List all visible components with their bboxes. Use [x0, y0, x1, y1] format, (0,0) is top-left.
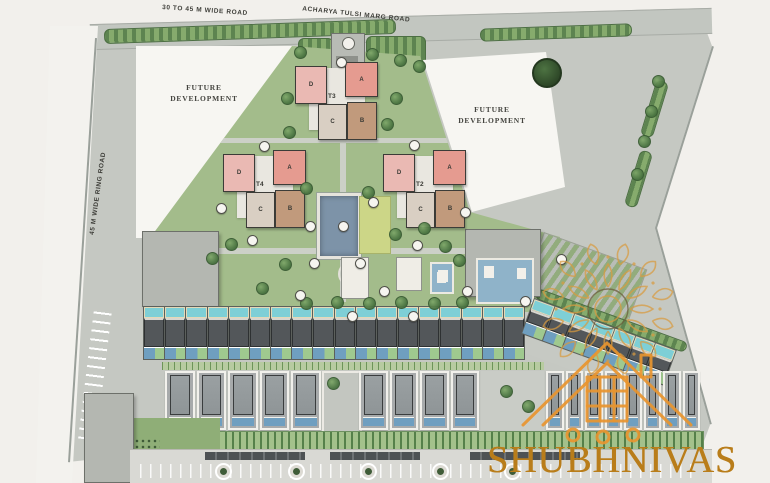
hedge-strip [162, 362, 544, 370]
tree-icon [395, 296, 408, 309]
amenity-marker [347, 311, 358, 322]
tree-icon [645, 105, 658, 118]
tower-cluster-t4: D A C B T4 [221, 144, 307, 230]
unit-roof [229, 318, 249, 347]
townhouse-unit [419, 307, 439, 359]
unit-roof [440, 318, 460, 347]
tree-icon [390, 92, 403, 105]
tree-icon [225, 238, 238, 251]
unit-roof [398, 318, 418, 347]
tower-label: T3 [328, 93, 336, 100]
villa-row-middle [359, 371, 479, 430]
amenity-marker [408, 311, 419, 322]
townhouse-unit [165, 307, 185, 359]
unit-yard [208, 347, 228, 359]
unit-yard [165, 347, 185, 359]
villa-unit [451, 371, 480, 430]
tower-block: D [295, 66, 327, 104]
tree-planter [288, 463, 305, 480]
plunge-pool [165, 307, 185, 318]
tree-icon [300, 182, 313, 195]
unit-roof [462, 318, 482, 347]
amenity-marker [309, 258, 320, 269]
tree-planter [360, 463, 377, 480]
townhouse-unit [462, 307, 482, 359]
tree-icon [256, 282, 269, 295]
plunge-pool [144, 307, 164, 318]
amenity-marker [462, 286, 473, 297]
tree-icon [418, 222, 431, 235]
tree-icon [366, 48, 379, 61]
future-development-label: FUTURE DEVELOPMENT [442, 104, 542, 127]
townhouse-unit [377, 307, 397, 359]
tree-icon [281, 92, 294, 105]
site-plan: 30 TO 45 M WIDE ROAD ACHARYA TULSI MARG … [0, 0, 770, 483]
round-planter [532, 58, 562, 88]
unit-yard [462, 347, 482, 359]
villa-unit [260, 371, 290, 430]
plunge-pool [440, 307, 460, 318]
amenity-marker [216, 203, 227, 214]
tower-block: D [383, 154, 415, 192]
tower-block: A [433, 150, 466, 185]
plunge-pool [229, 307, 249, 318]
townhouse-unit [186, 307, 206, 359]
amenity-marker [379, 286, 390, 297]
amenity-marker [295, 290, 306, 301]
tower-label: T4 [256, 181, 264, 188]
tower-block: B [347, 102, 377, 140]
unit-yard [144, 347, 164, 359]
plunge-pool [250, 307, 270, 318]
amenity-marker [460, 207, 471, 218]
amenity-marker [259, 141, 270, 152]
tree-icon [631, 168, 644, 181]
parked-cars [205, 452, 305, 460]
townhouse-unit [356, 307, 376, 359]
townhouse-row-1 [143, 306, 525, 360]
amenity-marker [409, 140, 420, 151]
brand-watermark-logo [495, 243, 755, 455]
unit-yard [186, 347, 206, 359]
unit-yard [229, 347, 249, 359]
tree-icon [283, 126, 296, 139]
tree-icon [439, 240, 452, 253]
utility-building [84, 393, 134, 483]
amenity-marker [368, 197, 379, 208]
tree-icon [279, 258, 292, 271]
tower-cluster-t2: D A C B T2 [381, 144, 467, 230]
mandala-icon [542, 243, 674, 375]
road-label-top-left: 30 TO 45 M WIDE ROAD [162, 4, 248, 17]
unit-yard [440, 347, 460, 359]
tower-block: D [223, 154, 255, 192]
tree-icon [456, 296, 469, 309]
townhouse-unit [271, 307, 291, 359]
amenity-marker [338, 221, 349, 232]
tree-icon [394, 54, 407, 67]
tree-icon [389, 228, 402, 241]
tree-planter [215, 463, 232, 480]
tree-icon [331, 296, 344, 309]
tower-block: C [246, 192, 275, 228]
unit-yard [356, 347, 376, 359]
tree-planter [432, 463, 449, 480]
unit-roof [377, 318, 397, 347]
parked-cars [330, 452, 420, 460]
tree-icon [327, 377, 340, 390]
unit-yard [335, 347, 355, 359]
unit-roof [250, 318, 270, 347]
townhouse-unit [144, 307, 164, 359]
villa-unit [420, 371, 449, 430]
townhouse-unit [229, 307, 249, 359]
amenity-marker [247, 235, 258, 246]
townhouse-unit [440, 307, 460, 359]
unit-yard [313, 347, 333, 359]
tower-block: C [318, 104, 347, 140]
unit-roof [292, 318, 312, 347]
cabana-pavilion [396, 257, 422, 291]
clubhouse-building [142, 231, 219, 307]
townhouse-unit [208, 307, 228, 359]
kids-pool [430, 262, 454, 294]
villa-unit [390, 371, 419, 430]
house-outline-icon [523, 343, 691, 443]
tree-icon [381, 118, 394, 131]
amenity-marker [305, 221, 316, 232]
plunge-pool [186, 307, 206, 318]
plunge-pool [271, 307, 291, 318]
plunge-pool [313, 307, 333, 318]
townhouse-unit [250, 307, 270, 359]
unit-roof [419, 318, 439, 347]
tree-icon [453, 254, 466, 267]
tower-cluster-t3: D A C B T3 [293, 56, 379, 142]
tree-icon [363, 297, 376, 310]
unit-roof [144, 318, 164, 347]
tower-block: A [273, 150, 306, 185]
tower-block: B [275, 190, 305, 228]
unit-roof [313, 318, 333, 347]
unit-yard [398, 347, 418, 359]
unit-yard [377, 347, 397, 359]
unit-roof [271, 318, 291, 347]
unit-roof [186, 318, 206, 347]
tree-icon [206, 252, 219, 265]
amenity-marker [412, 240, 423, 251]
villa-unit [228, 371, 258, 430]
amenity-marker [336, 57, 347, 68]
tree-icon [428, 297, 441, 310]
unit-yard [419, 347, 439, 359]
villa-unit [291, 371, 321, 430]
tree-icon [638, 135, 651, 148]
unit-roof [208, 318, 228, 347]
unit-roof [165, 318, 185, 347]
villa-unit [359, 371, 388, 430]
plunge-pool [208, 307, 228, 318]
unit-roof [335, 318, 355, 347]
unit-yard [271, 347, 291, 359]
gate-dome-icon [342, 37, 355, 50]
tower-block: A [345, 62, 378, 97]
unit-yard [250, 347, 270, 359]
brand-name: SHUBHNIVAS [476, 438, 748, 482]
future-development-label: FUTURE DEVELOPMENT [154, 82, 254, 105]
plunge-pool [377, 307, 397, 318]
unit-yard [292, 347, 312, 359]
tree-icon [413, 60, 426, 73]
unit-roof [356, 318, 376, 347]
tree-icon [652, 75, 665, 88]
amenity-marker [355, 258, 366, 269]
tree-icon [294, 46, 307, 59]
townhouse-unit [292, 307, 312, 359]
townhouse-unit [313, 307, 333, 359]
tower-label: T2 [416, 181, 424, 188]
